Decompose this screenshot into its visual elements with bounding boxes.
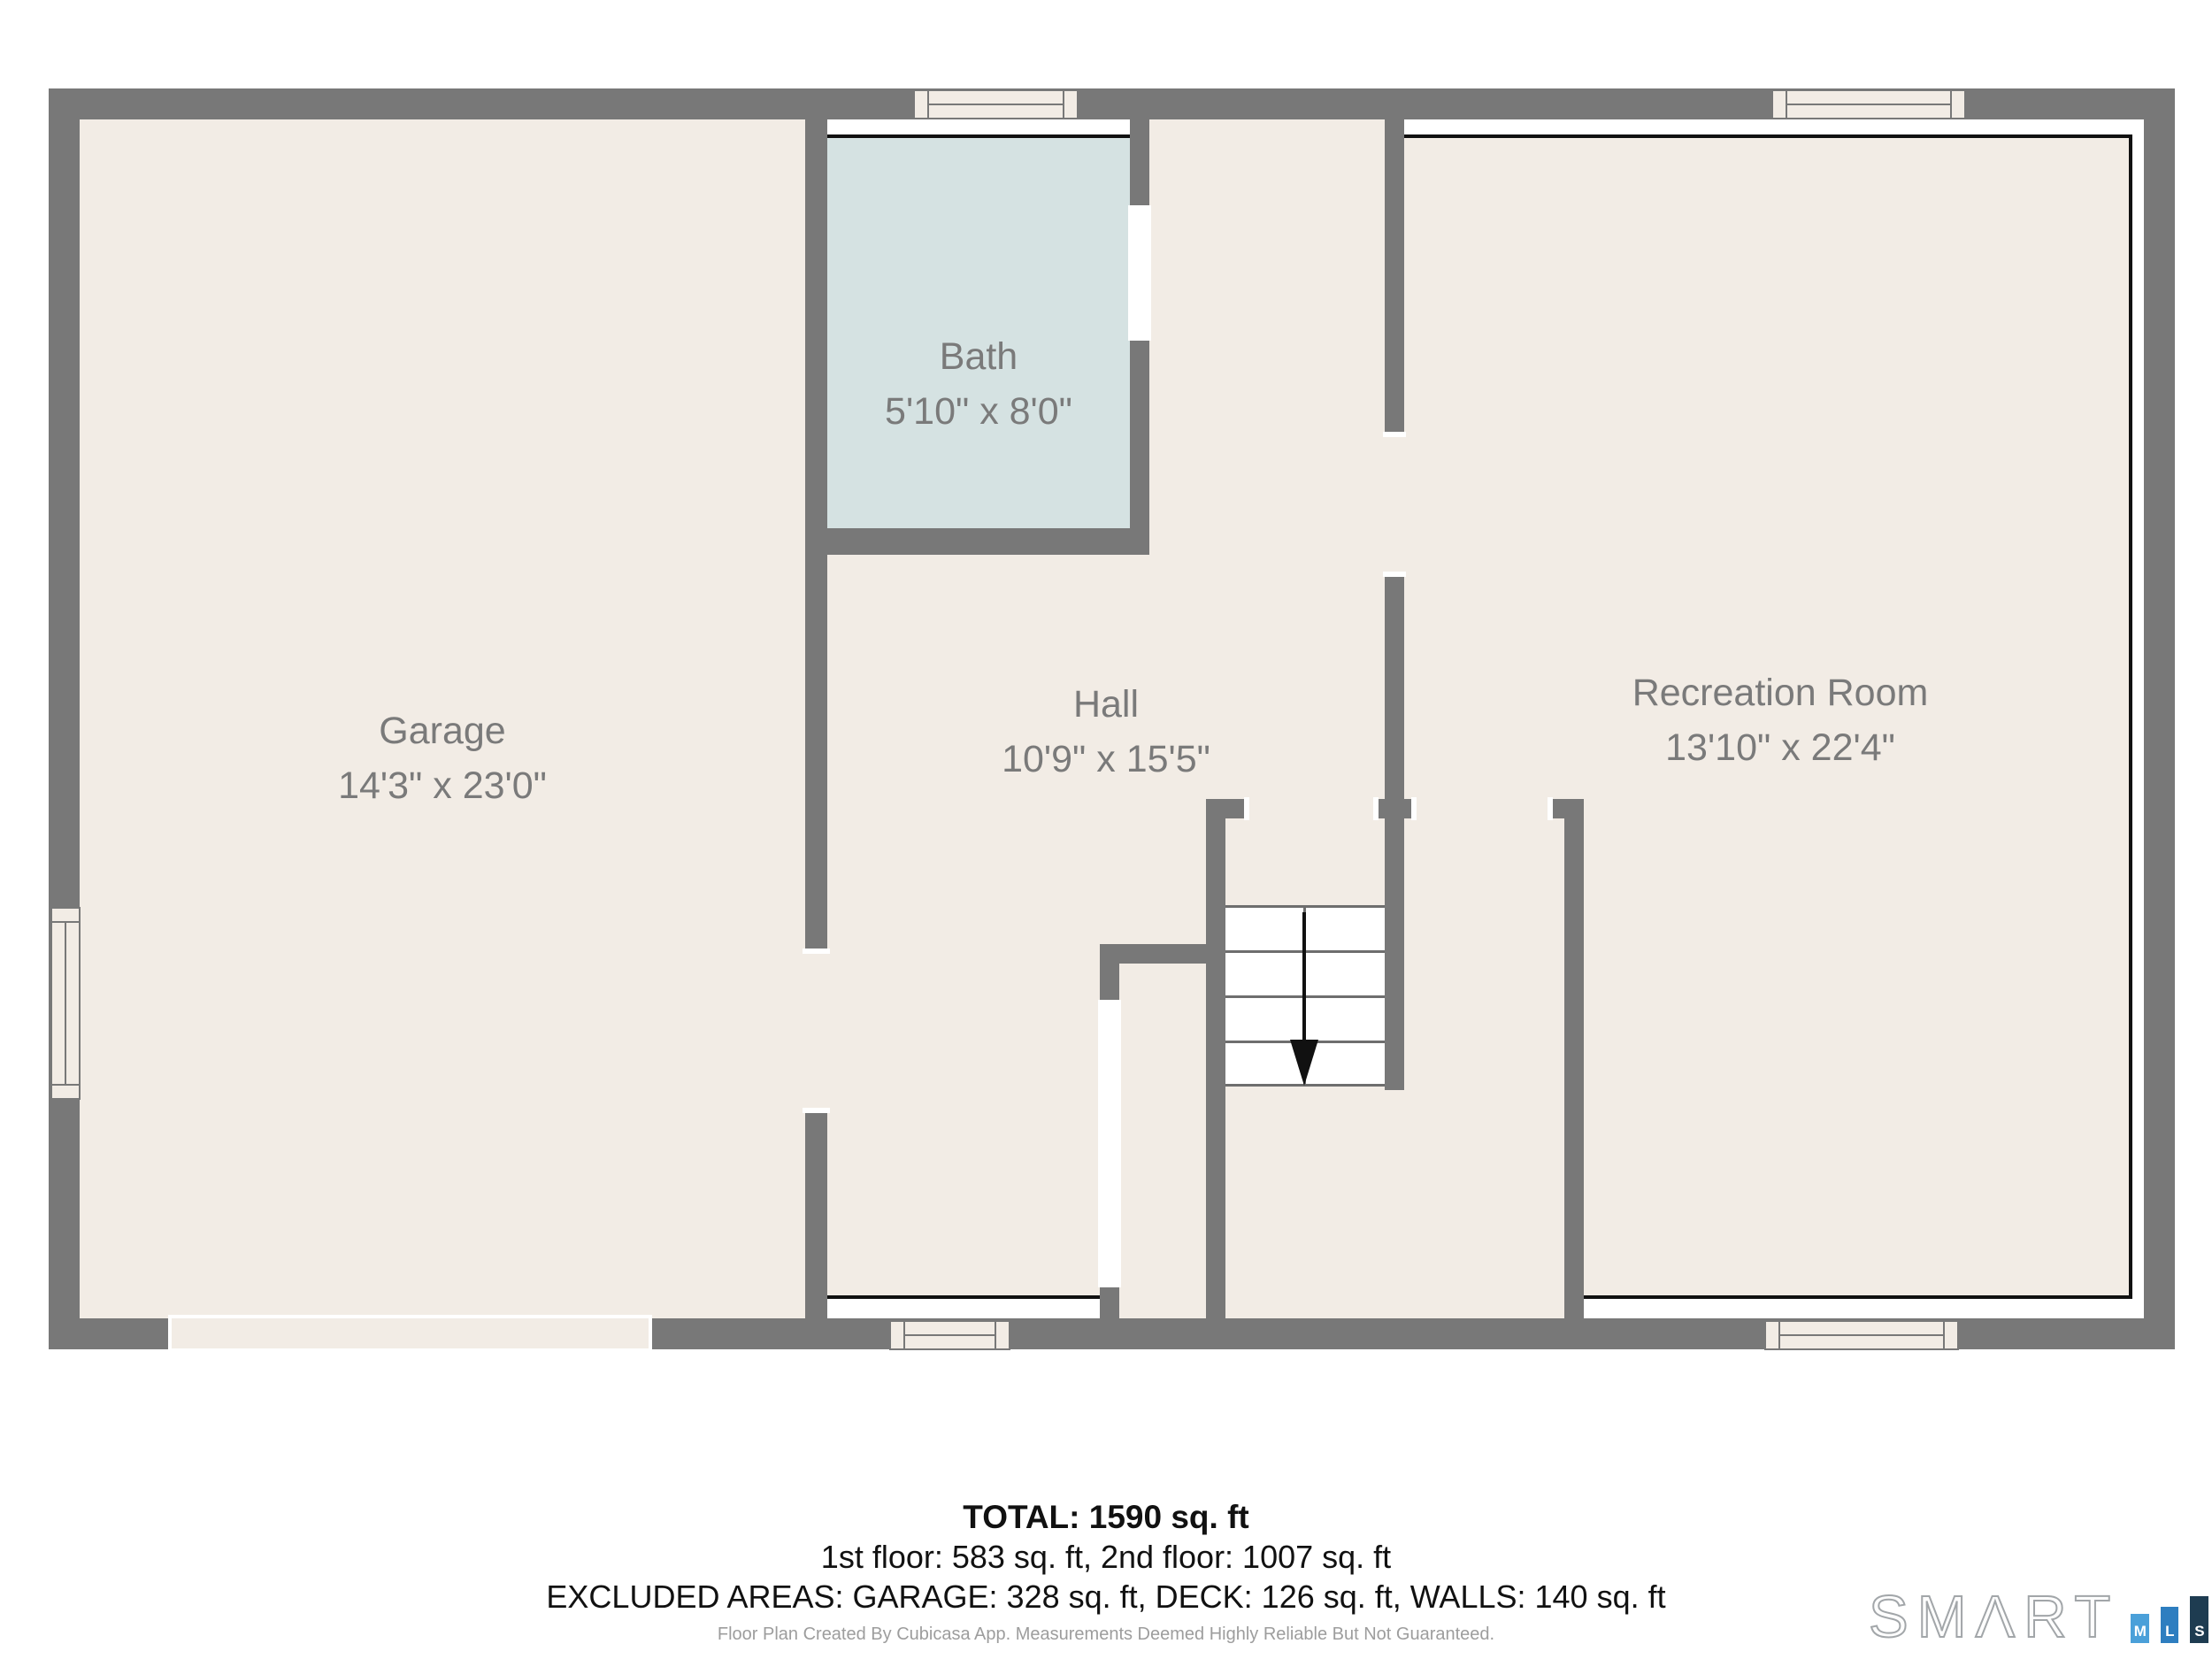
alcove-top-wall	[1100, 944, 1206, 964]
alcove-wall-opening	[1098, 1000, 1121, 1287]
garage-hall-door-opening	[803, 949, 830, 1113]
alcove-floor	[1119, 964, 1206, 1318]
bath-window	[913, 89, 1079, 119]
garage-hall-wall	[805, 119, 827, 1318]
stairs-down-arrow-icon	[1290, 1040, 1318, 1086]
recreation-room-bottom-window	[1764, 1320, 1959, 1350]
hall-recreation-wall	[1385, 119, 1404, 1090]
room-dims: 5'10" x 8'0"	[827, 384, 1130, 439]
hall-floor-south	[827, 944, 1100, 1295]
floor-areas-text: 1st floor: 583 sq. ft, 2nd floor: 1007 s…	[0, 1537, 2212, 1577]
window-mullion	[1778, 1334, 1945, 1336]
recreation-room-door-opening	[1383, 432, 1406, 577]
garage-left-window	[50, 907, 81, 1100]
room-name: Garage	[221, 703, 664, 758]
hall-label: Hall 10'9" x 15'5"	[885, 677, 1327, 787]
hall-bottom-window	[889, 1320, 1010, 1350]
recreation-room-floor-lower	[1584, 799, 2129, 1295]
garage-door-opening	[168, 1315, 652, 1352]
room-dims: 13'10" x 22'4"	[1493, 720, 2068, 775]
floor-plan-page: { "document": {"type": "floor-plan", "fl…	[0, 0, 2212, 1659]
stairs-down-arrow-line	[1302, 912, 1306, 1041]
recreation-room-label: Recreation Room 13'10" x 22'4"	[1493, 665, 2068, 775]
recreation-room-outline-top	[1404, 134, 2132, 138]
bath-label: Bath 5'10" x 8'0"	[827, 329, 1130, 439]
room-name: Recreation Room	[1493, 665, 2068, 720]
staircase	[1225, 905, 1385, 1087]
floor-plan-canvas: Garage 14'3" x 23'0" Bath 5'10" x 8'0" H…	[0, 0, 2212, 1659]
mls-s-square-icon: S	[2190, 1596, 2208, 1643]
recreation-room-outline-bottom	[1584, 1295, 2132, 1299]
mls-l-square-icon: L	[2161, 1607, 2178, 1643]
window-mullion	[903, 1334, 996, 1336]
stair-lower-landing-floor	[1225, 1087, 1564, 1318]
room-name: Hall	[885, 677, 1327, 732]
stair-top-door-opening	[1244, 797, 1379, 820]
recreation-room-outline-right	[2129, 134, 2132, 1299]
hall-floor-outline	[827, 1295, 1100, 1299]
window-mullion	[65, 921, 66, 1086]
stair-side-floor	[1404, 818, 1564, 1087]
total-area-text: TOTAL: 1590 sq. ft	[0, 1497, 2212, 1537]
bath-bottom-wall	[805, 528, 1149, 555]
stair-upper-landing-floor	[1225, 818, 1385, 905]
stairwell-right-wall	[1564, 799, 1584, 1318]
smartmls-logo: SMΛRT M L S	[1869, 1586, 2208, 1643]
hall-floor-east	[1149, 119, 1385, 555]
recreation-room-top-window	[1771, 89, 1966, 119]
smart-logo-wordmark: SMΛRT	[1869, 1592, 2119, 1643]
landing-door-opening	[1411, 797, 1553, 820]
garage-label: Garage 14'3" x 23'0"	[221, 703, 664, 813]
window-mullion	[1786, 104, 1952, 105]
room-dims: 14'3" x 23'0"	[221, 758, 664, 813]
stairwell-left-wall	[1206, 799, 1225, 1318]
mls-m-square-icon: M	[2131, 1614, 2149, 1643]
bath-door-opening	[1128, 205, 1151, 341]
window-mullion	[927, 104, 1064, 105]
hall-floor-mid	[827, 799, 1206, 944]
exterior-wall-right	[2144, 88, 2175, 1349]
room-dims: 10'9" x 15'5"	[885, 732, 1327, 787]
room-name: Bath	[827, 329, 1130, 384]
exterior-wall-left	[49, 88, 80, 1349]
